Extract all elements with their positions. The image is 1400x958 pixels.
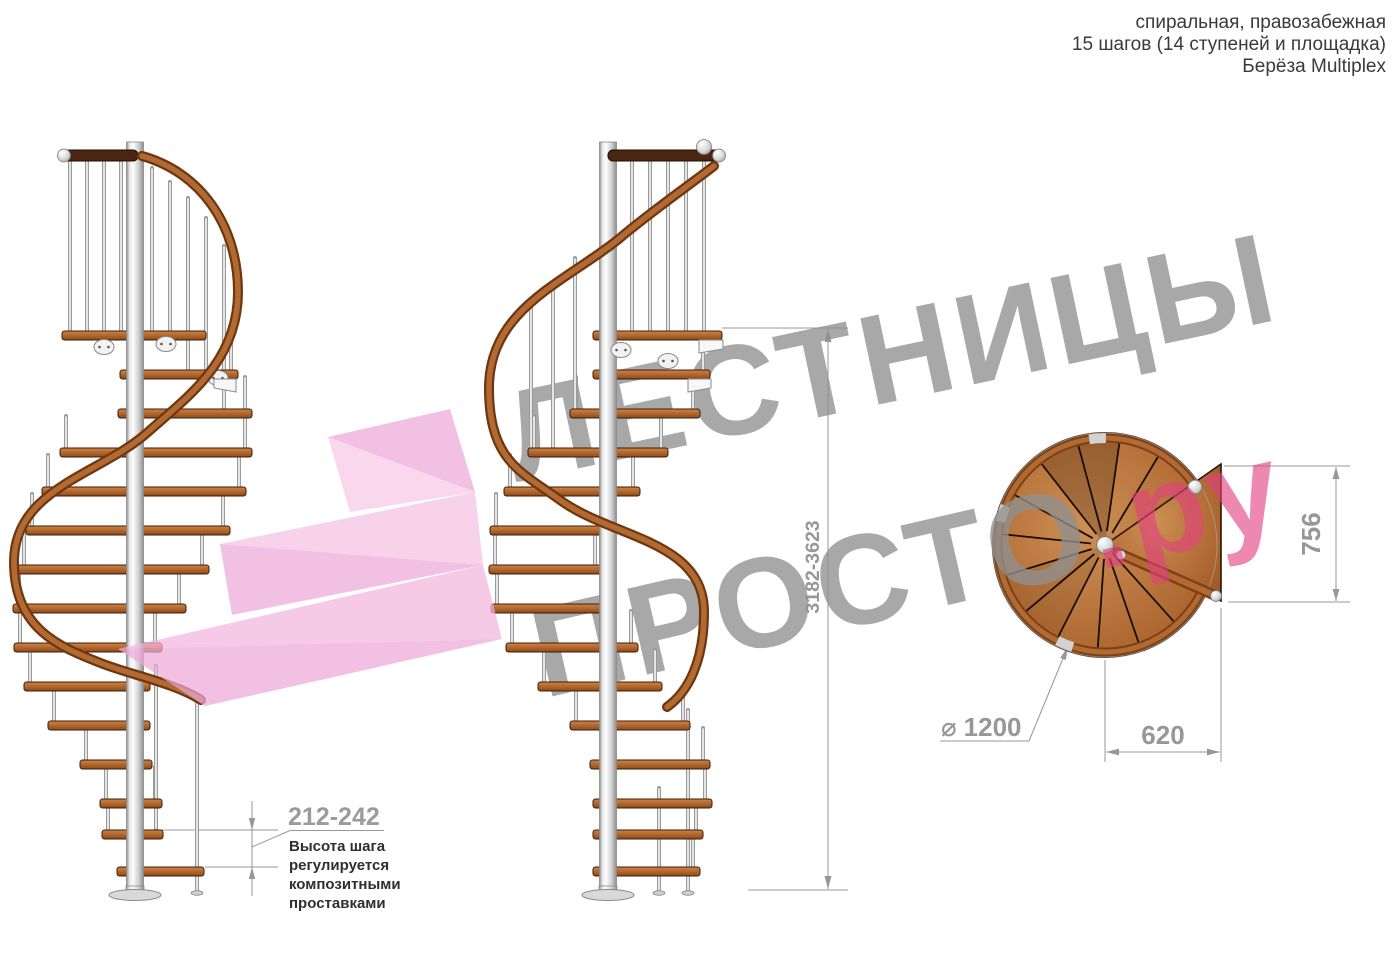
dimension-arrow-down [1333, 589, 1340, 601]
dimension-arrow-right [1207, 749, 1220, 756]
center-pole [127, 142, 144, 898]
step-height-note: Высота шага регулируется композитными пр… [289, 838, 401, 912]
baluster-foot [191, 891, 203, 896]
tread [18, 565, 209, 574]
mounting-disc [611, 343, 631, 358]
handrail-ball-cap [713, 149, 726, 162]
tread [504, 487, 640, 496]
staircase-side-view-1 [13, 142, 252, 901]
mounting-disc [94, 340, 114, 355]
staircase-side-view-2 [489, 140, 726, 901]
plan-rail-connector [1057, 641, 1073, 647]
platform-handrail [62, 150, 138, 161]
tread [491, 604, 612, 613]
drawing-page: 3182-3623 756 620 ⌀1200 212-242 Высота ш… [0, 0, 1400, 958]
diameter-icon: ⌀ [941, 712, 957, 742]
platform-width-value: 620 [1141, 720, 1184, 750]
baluster-foot [682, 891, 694, 896]
diameter-label: ⌀1200 [941, 712, 1022, 742]
plan-handrail-end-cap [1211, 591, 1222, 602]
title-line-steps: 15 шагов (14 ступеней и площадка) [1072, 34, 1386, 55]
note-line: регулируется [289, 857, 389, 874]
bolt-dot [624, 349, 627, 352]
note-line: композитными [289, 876, 401, 893]
step-height-value: 212-242 [288, 803, 380, 831]
bolt-dot [671, 360, 674, 363]
bolt-dot [98, 346, 101, 349]
mounting-disc [658, 354, 678, 369]
tread [506, 643, 638, 652]
tread [570, 721, 690, 730]
bolt-dot [662, 360, 665, 363]
bolt-dot [160, 343, 163, 346]
tread [490, 526, 612, 535]
pole-base-flange [109, 890, 161, 901]
logo-facet [118, 639, 502, 706]
diameter-value: 1200 [964, 712, 1022, 742]
bolt-dot [615, 349, 618, 352]
newel-finial-ball [697, 140, 712, 155]
dimension-arrow-up [249, 867, 255, 879]
mounting-disc [156, 337, 176, 352]
note-line: Высота шага [289, 838, 386, 855]
dimension-arrow-down [249, 818, 255, 830]
dimension-arrow-up [1333, 467, 1340, 479]
tread [13, 604, 186, 613]
title-block: спиральная, правозабежная 15 шагов (14 с… [1072, 12, 1387, 77]
tread [570, 409, 700, 418]
baluster-foot [653, 891, 665, 896]
tread [42, 487, 246, 496]
note-line: проставками [289, 895, 386, 912]
tread [528, 448, 668, 457]
title-line-material: Берёза Multiplex [1242, 56, 1386, 77]
pole-base-flange [582, 890, 634, 901]
handrail-ball-cap [58, 149, 71, 162]
tread [489, 565, 602, 574]
spiral-staircase-technical-drawing: 3182-3623 756 620 ⌀1200 212-242 Высота ш… [0, 0, 1400, 958]
bolt-dot [107, 346, 110, 349]
tread [60, 448, 252, 457]
dimension-arrow-down [825, 876, 832, 889]
bolt-dot [169, 343, 172, 346]
platform-depth-value: 756 [1296, 512, 1326, 555]
plan-rail-connector [1089, 438, 1106, 439]
support-bracket [214, 379, 236, 392]
title-line-type: спиральная, правозабежная [1136, 12, 1386, 33]
dimension-arrow-left [1106, 749, 1119, 756]
